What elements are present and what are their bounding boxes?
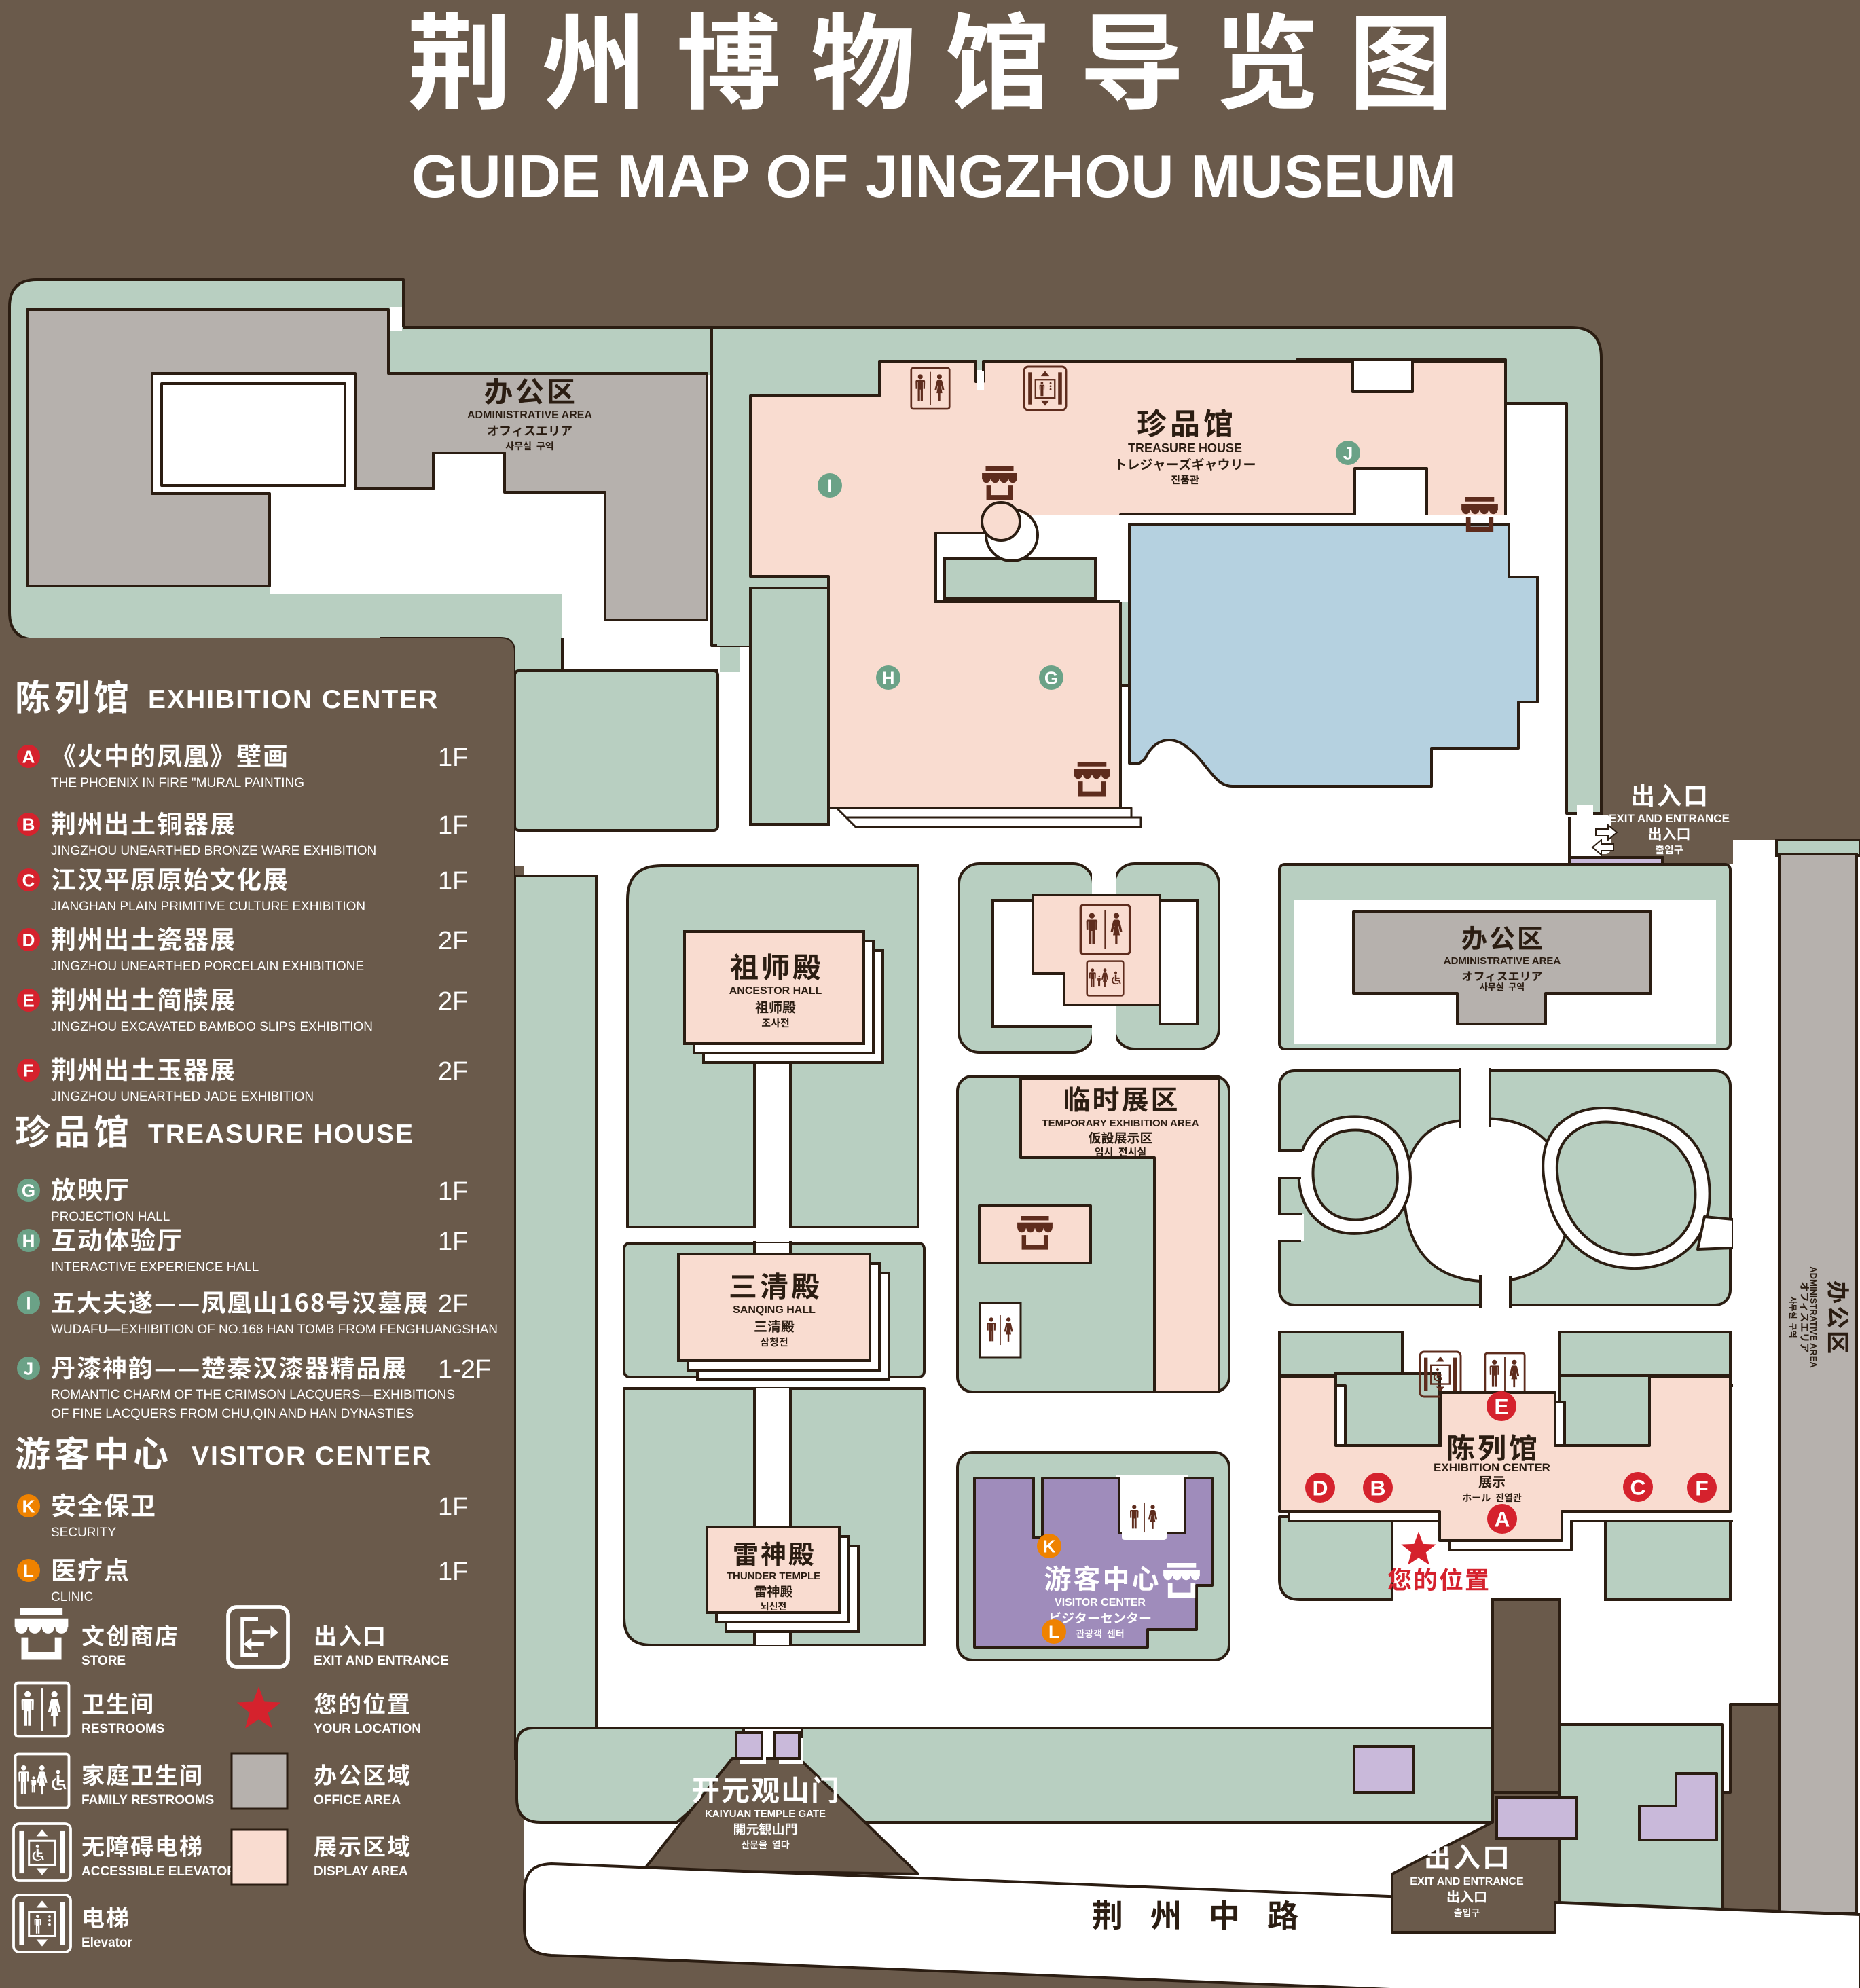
- svg-text:E: E: [1494, 1394, 1508, 1418]
- svg-text:2F: 2F: [438, 1057, 468, 1086]
- svg-text:A: A: [1494, 1507, 1510, 1531]
- svg-text:E: E: [22, 990, 34, 1010]
- svg-text:TEMPORARY EXHIBITION AREA: TEMPORARY EXHIBITION AREA: [1042, 1118, 1199, 1129]
- svg-text:WUDAFU—EXHIBITION OF NO.168 HA: WUDAFU—EXHIBITION OF NO.168 HAN TOMB FRO…: [51, 1323, 498, 1337]
- svg-text:TREASURE HOUSE: TREASURE HOUSE: [148, 1120, 414, 1149]
- svg-text:YOUR LOCATION: YOUR LOCATION: [314, 1722, 421, 1736]
- svg-text:OF FINE LACQUERS FROM CHU,QIN: OF FINE LACQUERS FROM CHU,QIN AND HAN DY…: [51, 1407, 414, 1421]
- svg-text:JINGZHOU UNEARTHED JADE EXHIBI: JINGZHOU UNEARTHED JADE EXHIBITION: [51, 1090, 314, 1104]
- svg-text:L: L: [1048, 1621, 1059, 1642]
- svg-text:STORE: STORE: [81, 1654, 126, 1668]
- svg-text:ADMINISTRATIVE AREA: ADMINISTRATIVE AREA: [467, 409, 592, 421]
- svg-text:1F: 1F: [438, 1493, 468, 1522]
- svg-text:ROMANTIC CHARM OF THE CRIMSON: ROMANTIC CHARM OF THE CRIMSON LACQUERS—E…: [51, 1388, 455, 1402]
- svg-text:THE PHOENIX IN FIRE "MURAL PAI: THE PHOENIX IN FIRE "MURAL PAINTING: [51, 776, 304, 790]
- svg-text:C: C: [22, 870, 35, 890]
- svg-text:EXHIBITION CENTER: EXHIBITION CENTER: [1434, 1461, 1550, 1474]
- svg-text:ANCESTOR HALL: ANCESTOR HALL: [729, 985, 822, 997]
- svg-text:2F: 2F: [438, 1290, 468, 1319]
- svg-text:D: D: [1312, 1475, 1328, 1500]
- svg-text:FAMILY RESTROOMS: FAMILY RESTROOMS: [81, 1793, 214, 1807]
- svg-text:RESTROOMS: RESTROOMS: [81, 1722, 164, 1736]
- svg-text:1F: 1F: [438, 811, 468, 840]
- svg-text:I: I: [827, 475, 832, 496]
- svg-text:D: D: [22, 929, 35, 950]
- svg-text:EXIT AND ENTRANCE: EXIT AND ENTRANCE: [314, 1654, 449, 1668]
- svg-text:1F: 1F: [438, 743, 468, 772]
- svg-text:1F: 1F: [438, 1228, 468, 1256]
- svg-text:2F: 2F: [438, 987, 468, 1016]
- svg-text:H: H: [22, 1230, 35, 1251]
- svg-text:ADMINISTRATIVE AREA: ADMINISTRATIVE AREA: [1808, 1266, 1819, 1368]
- svg-text:K: K: [22, 1496, 35, 1516]
- svg-text:JIANGHAN PLAIN PRIMITIVE CULTU: JIANGHAN PLAIN PRIMITIVE CULTURE EXHIBIT…: [51, 900, 365, 914]
- svg-text:THUNDER TEMPLE: THUNDER TEMPLE: [727, 1570, 820, 1582]
- svg-text:EXIT AND ENTRANCE: EXIT AND ENTRANCE: [1609, 812, 1730, 825]
- svg-text:OFFICE AREA: OFFICE AREA: [314, 1793, 401, 1807]
- svg-text:1-2F: 1-2F: [438, 1355, 491, 1384]
- svg-text:F: F: [1695, 1475, 1708, 1500]
- svg-text:B: B: [22, 814, 35, 834]
- svg-text:SANQING HALL: SANQING HALL: [733, 1304, 816, 1316]
- svg-text:K: K: [1043, 1536, 1056, 1556]
- svg-text:CLINIC: CLINIC: [51, 1590, 93, 1604]
- svg-text:GUIDE MAP OF JINGZHOU MUSEUM: GUIDE MAP OF JINGZHOU MUSEUM: [412, 143, 1456, 210]
- svg-text:1F: 1F: [438, 867, 468, 896]
- svg-text:JINGZHOU UNEARTHED PORCELAIN E: JINGZHOU UNEARTHED PORCELAIN EXHIBITIONE: [51, 959, 364, 974]
- svg-text:I: I: [26, 1293, 31, 1313]
- svg-text:J: J: [1343, 443, 1353, 463]
- svg-text:VISITOR CENTER: VISITOR CENTER: [192, 1441, 433, 1471]
- svg-text:G: G: [1044, 667, 1058, 688]
- svg-text:1F: 1F: [438, 1177, 468, 1206]
- svg-text:L: L: [23, 1560, 34, 1581]
- svg-text:ACCESSIBLE ELEVATOR: ACCESSIBLE ELEVATOR: [81, 1864, 236, 1879]
- svg-text:A: A: [22, 746, 35, 767]
- svg-text:JINGZHOU UNEARTHED BRONZE WARE: JINGZHOU UNEARTHED BRONZE WARE EXHIBITIO…: [51, 844, 376, 858]
- svg-text:TREASURE HOUSE: TREASURE HOUSE: [1128, 441, 1242, 455]
- svg-text:Elevator: Elevator: [81, 1936, 133, 1950]
- svg-text:JINGZHOU EXCAVATED BAMBOO SLIP: JINGZHOU EXCAVATED BAMBOO SLIPS EXHIBITI…: [51, 1020, 373, 1034]
- svg-text:F: F: [23, 1060, 34, 1080]
- svg-text:SECURITY: SECURITY: [51, 1526, 116, 1540]
- svg-text:INTERACTIVE EXPERIENCE HALL: INTERACTIVE EXPERIENCE HALL: [51, 1260, 259, 1274]
- svg-text:ADMINISTRATIVE AREA: ADMINISTRATIVE AREA: [1444, 955, 1561, 967]
- svg-text:J: J: [24, 1358, 33, 1378]
- svg-text:G: G: [22, 1180, 35, 1200]
- svg-text:KAIYUAN TEMPLE GATE: KAIYUAN TEMPLE GATE: [705, 1808, 826, 1820]
- svg-text:PROJECTION HALL: PROJECTION HALL: [51, 1210, 170, 1224]
- svg-text:C: C: [1630, 1475, 1645, 1499]
- svg-text:1F: 1F: [438, 1558, 468, 1586]
- svg-text:2F: 2F: [438, 927, 468, 955]
- svg-text:EXHIBITION CENTER: EXHIBITION CENTER: [148, 685, 439, 714]
- svg-text:VISITOR CENTER: VISITOR CENTER: [1055, 1597, 1146, 1608]
- svg-text:B: B: [1370, 1475, 1385, 1500]
- svg-text:H: H: [882, 667, 895, 688]
- svg-text:EXIT AND ENTRANCE: EXIT AND ENTRANCE: [1410, 1876, 1524, 1888]
- svg-text:DISPLAY AREA: DISPLAY AREA: [314, 1864, 408, 1879]
